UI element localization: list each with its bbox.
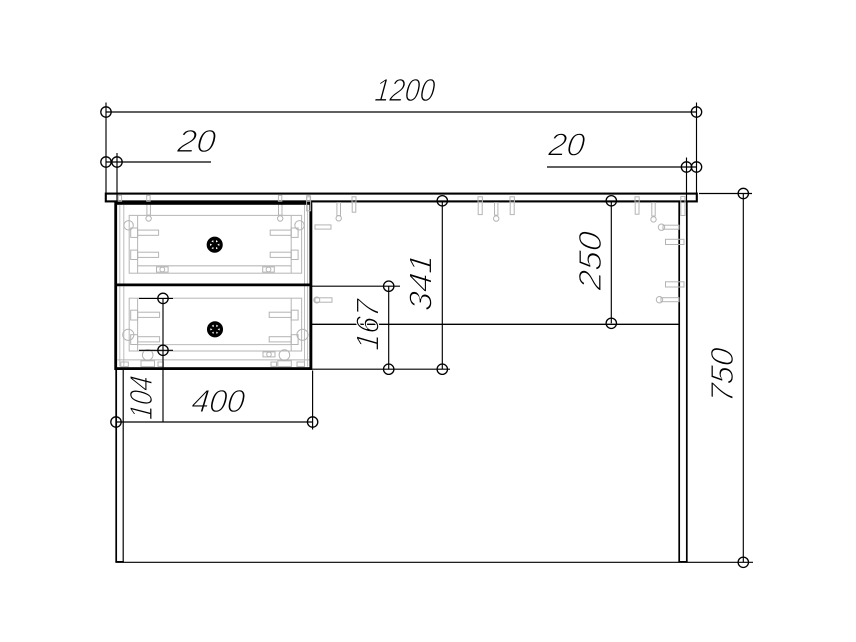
svg-text:20: 20 [546,127,587,163]
svg-text:104: 104 [123,374,159,421]
svg-text:1200: 1200 [373,72,437,108]
svg-text:20: 20 [175,123,218,159]
svg-text:400: 400 [190,383,247,419]
svg-text:250: 250 [572,229,608,292]
svg-text:341: 341 [403,252,439,312]
svg-text:167: 167 [350,297,386,352]
svg-text:750: 750 [704,346,740,404]
